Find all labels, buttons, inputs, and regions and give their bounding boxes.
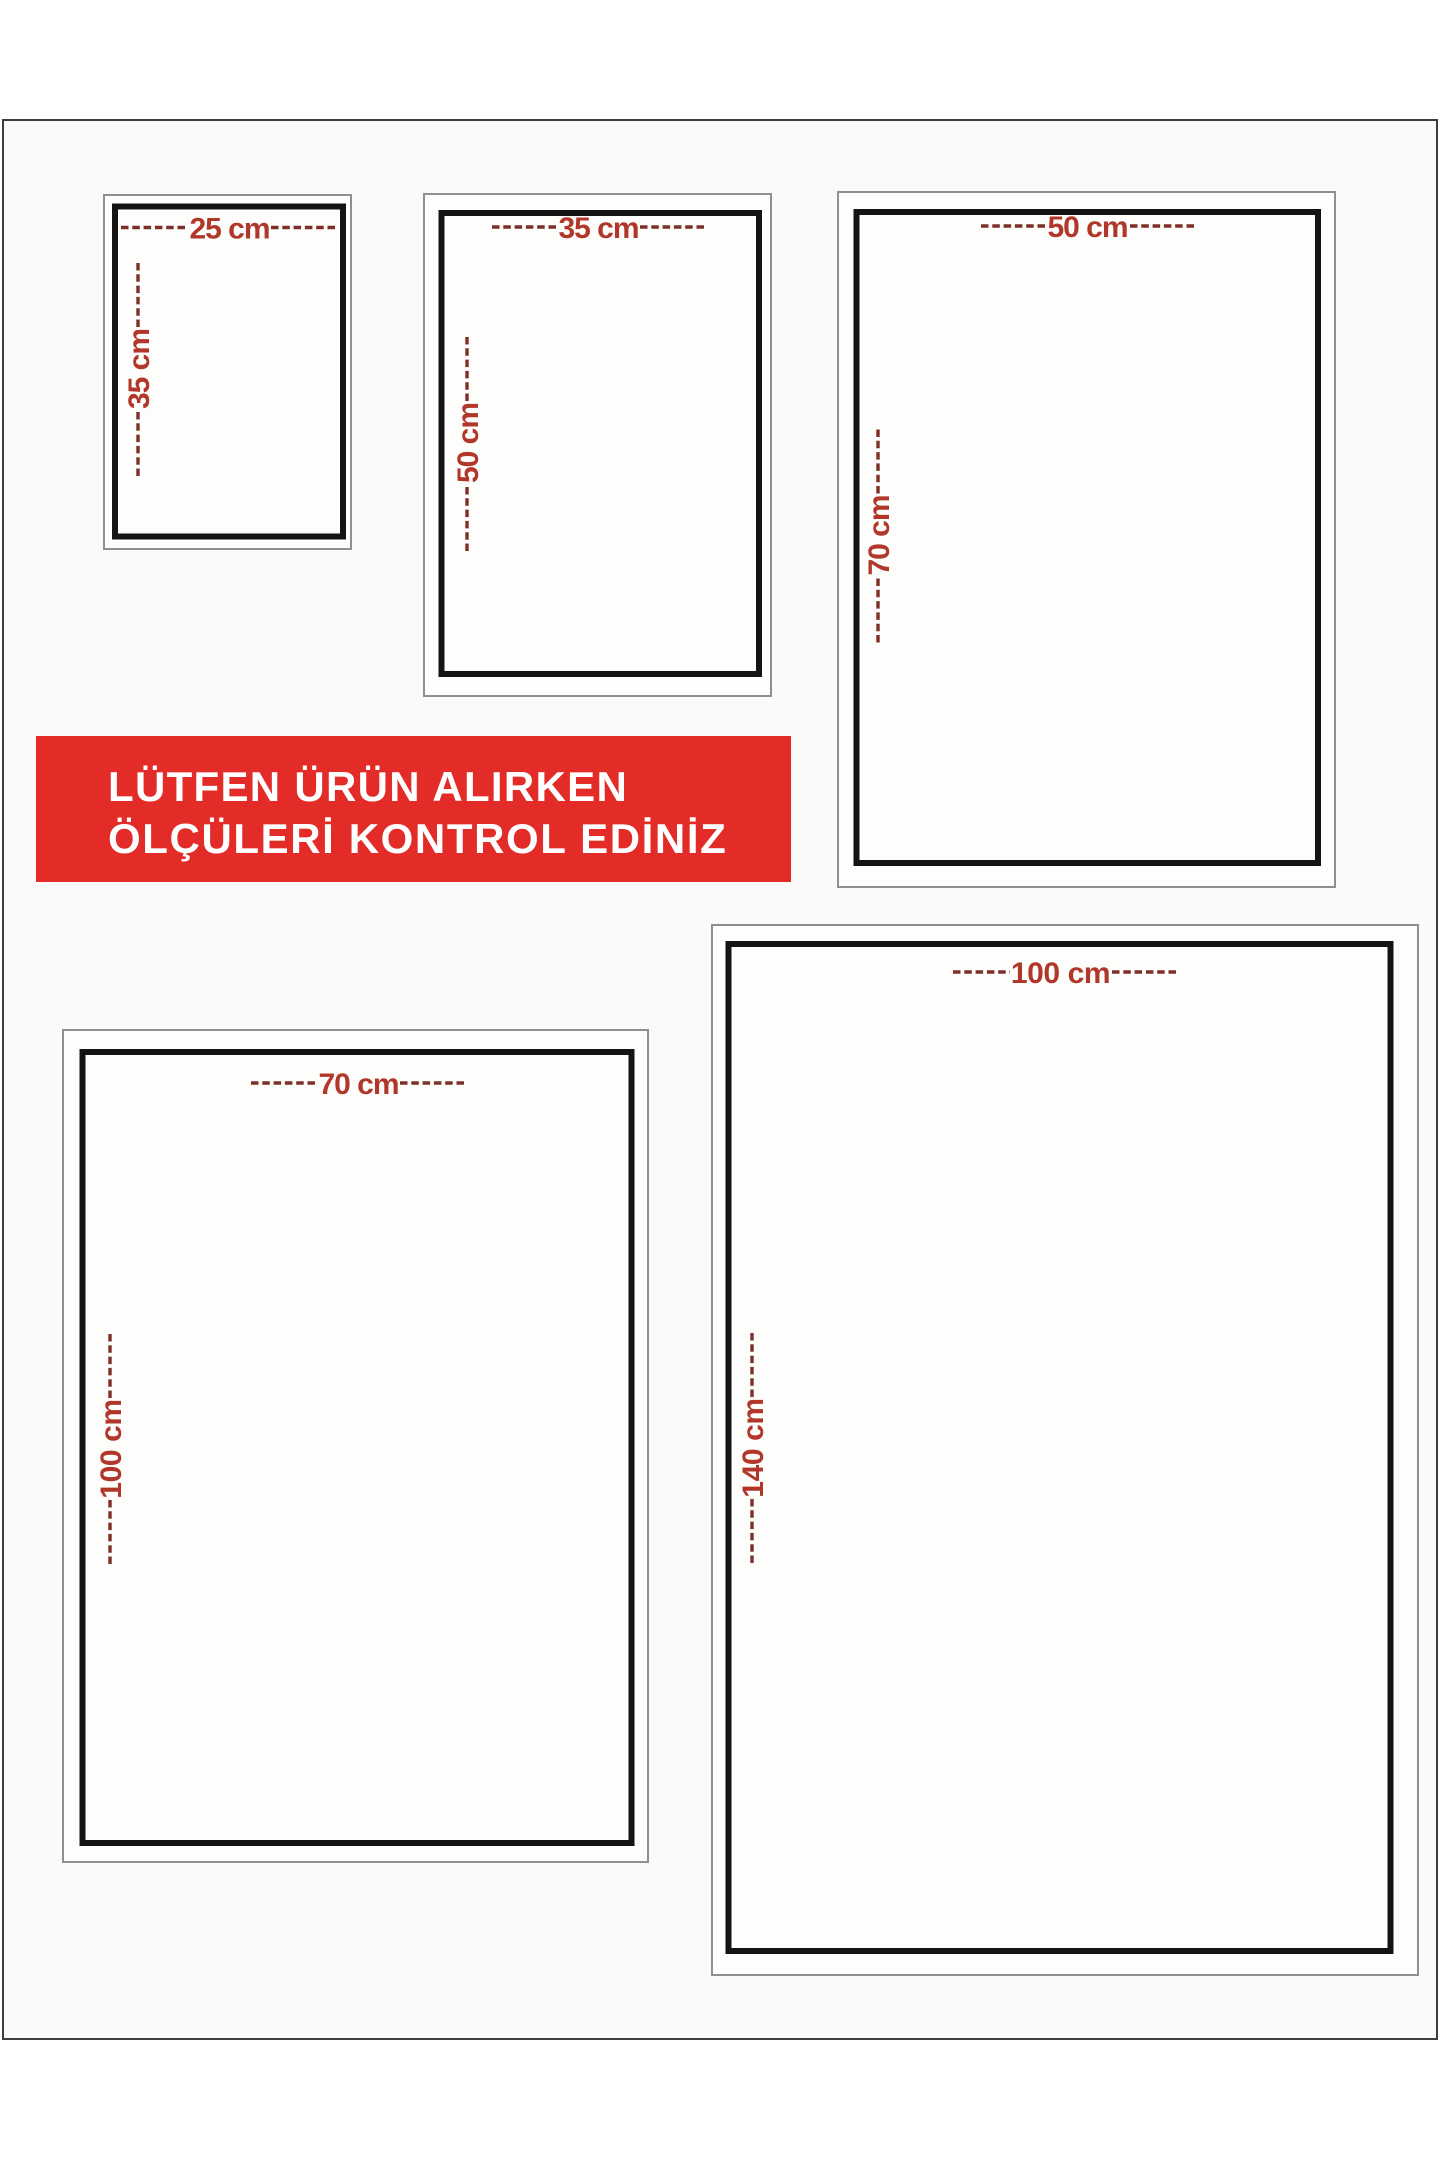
- svg-text:100 cm: 100 cm: [95, 1399, 128, 1498]
- svg-text:70 cm: 70 cm: [318, 1068, 398, 1101]
- svg-text:35 cm: 35 cm: [123, 329, 156, 409]
- svg-text:70 cm: 70 cm: [863, 495, 896, 575]
- svg-text:100 cm: 100 cm: [1011, 957, 1110, 990]
- svg-text:50 cm: 50 cm: [1047, 211, 1127, 244]
- svg-text:35 cm: 35 cm: [558, 212, 638, 245]
- svg-text:LÜTFEN ÜRÜN ALIRKEN: LÜTFEN ÜRÜN ALIRKEN: [108, 763, 628, 810]
- svg-text:50 cm: 50 cm: [452, 403, 485, 483]
- svg-text:25 cm: 25 cm: [189, 213, 269, 246]
- svg-text:140 cm: 140 cm: [737, 1398, 770, 1497]
- svg-text:ÖLÇÜLERİ KONTROL EDİNİZ: ÖLÇÜLERİ KONTROL EDİNİZ: [108, 815, 727, 862]
